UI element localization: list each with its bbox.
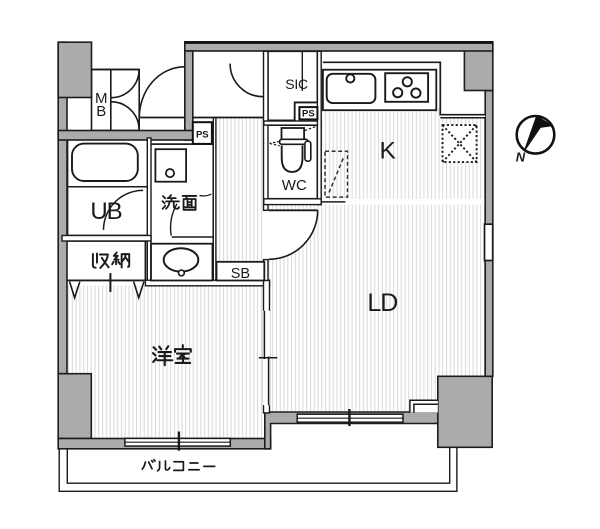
svg-text:N: N (516, 150, 526, 165)
svg-text:SIC: SIC (285, 76, 308, 92)
svg-text:LD: LD (367, 289, 397, 317)
svg-text:PS: PS (196, 130, 209, 141)
svg-text:B: B (96, 103, 106, 120)
svg-text:WC: WC (282, 177, 307, 194)
svg-text:UB: UB (90, 198, 121, 225)
svg-text:K: K (380, 137, 397, 164)
svg-text:PS: PS (302, 109, 315, 120)
svg-text:SB: SB (231, 266, 250, 282)
